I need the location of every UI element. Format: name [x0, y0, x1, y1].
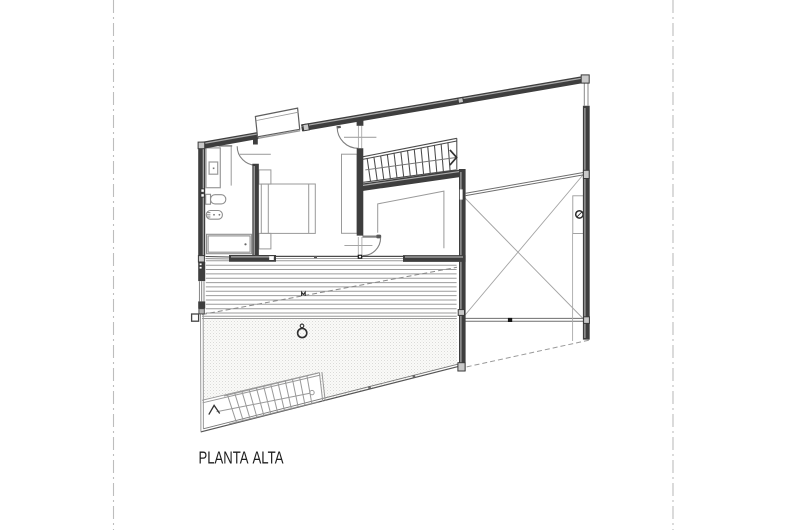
svg-text:ALTA: ALTA — [253, 447, 284, 467]
svg-text:PLANTA: PLANTA — [199, 447, 249, 467]
